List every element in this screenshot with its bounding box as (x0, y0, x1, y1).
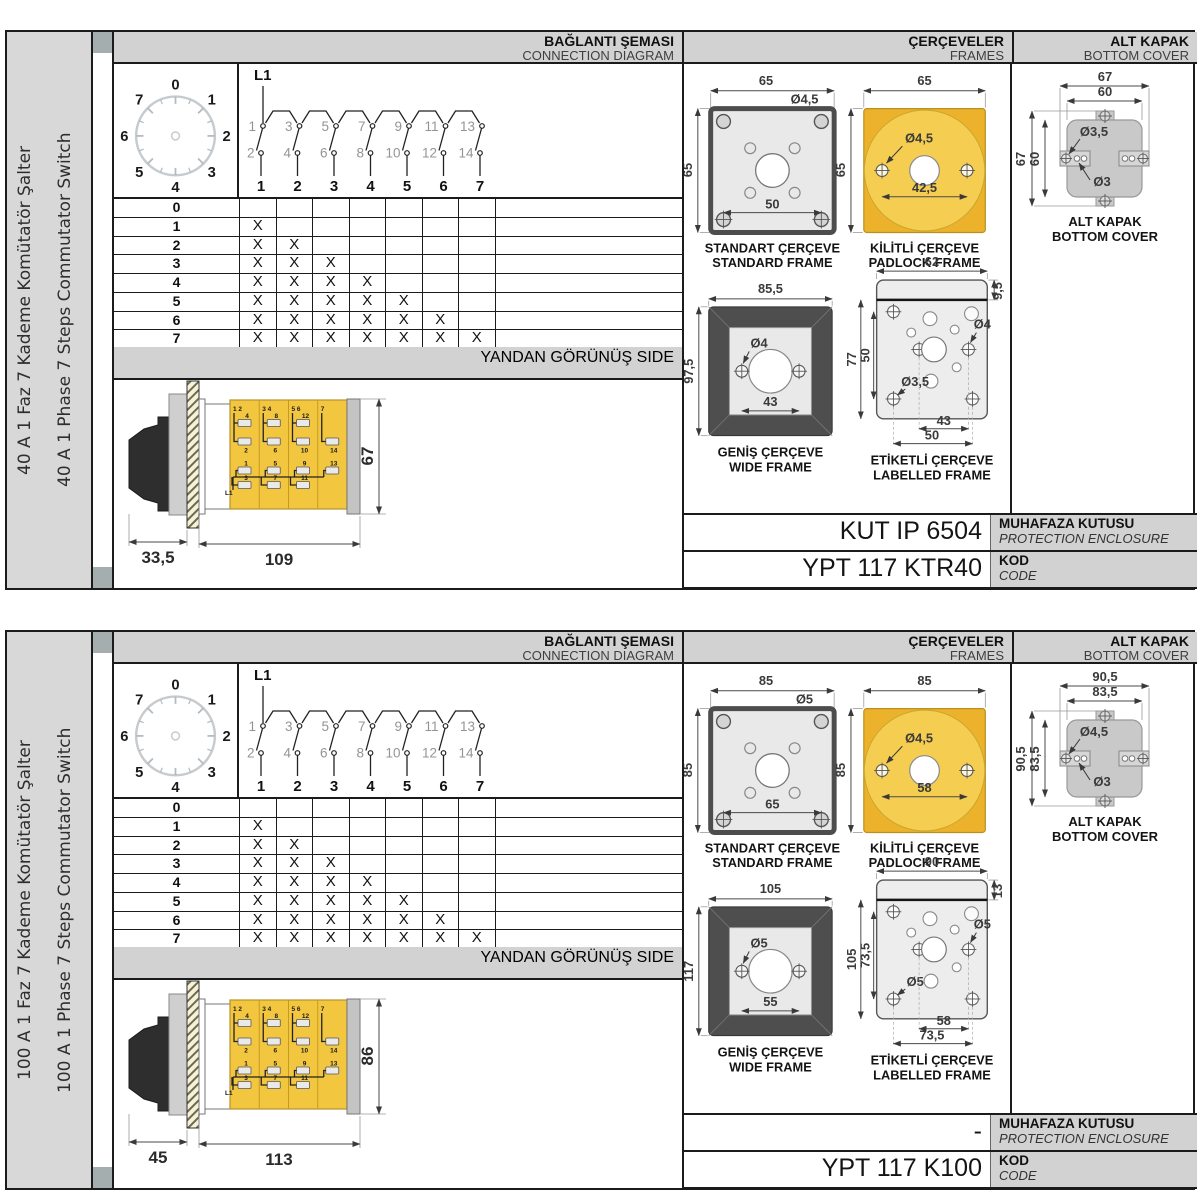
cover-width-inner: 60 (1098, 84, 1112, 99)
side-header-en: SIDE (637, 349, 674, 366)
dial-position: 5 (135, 165, 143, 181)
knob (129, 417, 169, 511)
contact-cell (386, 237, 423, 255)
connection-header-tr: BAĞLANTI ŞEMASI (114, 34, 674, 49)
contact-cell (350, 237, 387, 255)
bottom-terminal: 6 (320, 746, 328, 761)
bottom-terminal: 14 (458, 146, 474, 161)
contact-cell: X (350, 912, 387, 930)
terminal-pair-label: 7 (321, 1006, 325, 1013)
filler-cell (496, 874, 683, 892)
product-name-english: 40 A 1 Phase 7 Steps Commutator Switch (55, 32, 81, 588)
contact-cell: X (240, 255, 277, 273)
output-number: 5 (403, 178, 411, 195)
output-number: 1 (257, 778, 265, 795)
terminal-pair-label: 5 6 (292, 1006, 301, 1013)
step-row: 1X (114, 818, 682, 837)
step-number: 4 (114, 274, 240, 292)
contact-cell (459, 818, 496, 836)
code-label: KOD CODE (990, 1152, 1197, 1187)
padlock-frame-width: 85 (917, 673, 931, 688)
contact-cell: X (240, 312, 277, 330)
contact-cell: X (277, 855, 314, 873)
labelled-frame-caption-en: LABELLED FRAME (873, 467, 991, 482)
product-name-turkish: 40 A 1 Faz 7 Kademe Komütatör Şalter (15, 32, 41, 588)
frames-drawings: 85 Ø5 85 (682, 664, 1012, 1113)
step-number: 1 (114, 218, 240, 236)
step-number: 2 (114, 837, 240, 855)
contact-cell: X (313, 293, 350, 311)
bottom-terminal: 6 (320, 146, 328, 161)
wide-frame-width: 105 (760, 881, 781, 896)
code-label: KOD CODE (990, 552, 1197, 587)
contact-cell (277, 218, 314, 236)
dial-position: 7 (135, 93, 143, 109)
contact-cell: X (313, 274, 350, 292)
filler-cell (496, 237, 683, 255)
cover-hole-tab: Ø4,5 (1080, 724, 1108, 739)
step-number: 2 (114, 237, 240, 255)
top-terminal: 7 (358, 719, 366, 734)
standard-frame-height: 85 (684, 763, 695, 777)
contact-cell: X (313, 330, 350, 347)
filler-cell (496, 312, 683, 330)
contact-cell (423, 818, 460, 836)
contact-cell: X (277, 237, 314, 255)
contact-cell: X (277, 893, 314, 911)
contact-cell (423, 237, 460, 255)
product-section: 40 A 1 Faz 7 Kademe Komütatör Şalter 40 … (5, 30, 1195, 590)
dial-position: 7 (135, 693, 143, 709)
line-label: L1 (254, 667, 272, 684)
filler-cell (496, 818, 683, 836)
contact-cell: X (386, 912, 423, 930)
frames-header: ÇERÇEVELER FRAMES (682, 632, 1012, 664)
contact-cell: X (277, 274, 314, 292)
contact-cell: X (350, 893, 387, 911)
cover-hole-tab: Ø3,5 (1080, 124, 1108, 139)
labelled-frame-hole-bottom: Ø3,5 (901, 374, 929, 389)
output-number: 1 (257, 178, 265, 195)
bottom-cover-header: ALT KAPAK BOTTOM COVER (1012, 32, 1197, 64)
filler-cell (496, 930, 683, 947)
labelled-frame-width: 62 (925, 254, 939, 269)
knob (129, 1017, 169, 1111)
cover-header-tr: ALT KAPAK (1014, 634, 1189, 649)
spine-square-top (93, 32, 112, 53)
contact-cell (277, 199, 314, 217)
contact-cell (386, 855, 423, 873)
bottom-cover-drawing: 90,5 83,5 90,5 83,5 (1012, 664, 1197, 1113)
enclosure-label-tr: MUHAFAZA KUTUSU (999, 516, 1197, 532)
wide-frame-caption-en: WIDE FRAME (729, 1059, 812, 1074)
mounting-plate (187, 381, 199, 528)
standard-frame-drawing: 65 Ø4,5 65 (684, 73, 840, 270)
step-number: 7 (114, 330, 240, 347)
wide-frame-caption-tr: GENİŞ ÇERÇEVE (718, 444, 824, 459)
enclosure-label-en: PROTECTION ENCLOSURE (999, 532, 1197, 546)
contact-cell: X (386, 930, 423, 947)
terminal-number: 6 (273, 1048, 277, 1055)
terminal-number: 4 (245, 413, 249, 420)
terminal-number: 2 (244, 1048, 248, 1055)
output-number: 7 (476, 178, 484, 195)
bottom-terminal: 14 (458, 746, 474, 761)
code-value: YPT 117 KTR40 (684, 552, 990, 587)
contact-cell (423, 855, 460, 873)
terminal-pair-label: 7 (321, 406, 325, 413)
contact-cell: X (423, 312, 460, 330)
contact-cell: X (240, 293, 277, 311)
enclosure-row: KUT IP 6504 MUHAFAZA KUTUSU PROTECTION E… (682, 513, 1197, 550)
contact-cell: X (277, 293, 314, 311)
contact-cell: X (240, 893, 277, 911)
bottom-terminal: 8 (356, 146, 364, 161)
position-dial: 01234567 (114, 64, 239, 197)
standard-frame-hole: Ø4,5 (791, 92, 819, 107)
top-terminal: 11 (424, 719, 438, 734)
enclosure-label-en: PROTECTION ENCLOSURE (999, 1132, 1197, 1146)
knob-depth-dim: 45 (149, 1148, 168, 1167)
contact-cell (350, 837, 387, 855)
body-height-dim: 86 (358, 1047, 377, 1066)
bottom-terminal: 10 (385, 146, 400, 161)
enclosure-label: MUHAFAZA KUTUSU PROTECTION ENCLOSURE (990, 1115, 1197, 1150)
enclosure-value: - (684, 1115, 990, 1150)
labelled-frame-drawing: 90 13 105 73,5 (844, 854, 1005, 1082)
step-row: 0 (114, 199, 682, 218)
contact-cell (350, 218, 387, 236)
labelled-frame-spacing-outer: 50 (925, 428, 939, 443)
contact-cell: X (240, 855, 277, 873)
padlock-frame-hole: Ø4,5 (905, 130, 933, 145)
top-terminal: 9 (394, 719, 402, 734)
step-number: 7 (114, 930, 240, 947)
top-terminal: 11 (424, 119, 438, 134)
contact-cell (386, 274, 423, 292)
contact-cell: X (423, 912, 460, 930)
terminal-pair-label: 1 2 (233, 406, 242, 413)
filler-cell (496, 274, 683, 292)
terminal-number: 1 (244, 461, 248, 468)
bottom-terminal: 12 (422, 146, 437, 161)
padlock-frame-width: 65 (917, 73, 931, 88)
contact-cell (386, 255, 423, 273)
contact-cell (313, 199, 350, 217)
contact-cell (350, 818, 387, 836)
standard-frame-caption-tr: STANDART ÇERÇEVE (705, 840, 841, 855)
top-terminal: 13 (460, 719, 475, 734)
cover-caption-tr: ALT KAPAK (1068, 814, 1142, 829)
terminal-number: 9 (303, 461, 307, 468)
labelled-frame-hole-bottom: Ø5 (907, 974, 924, 989)
dial-position: 6 (120, 729, 128, 745)
labelled-frame-hole-right: Ø4 (974, 317, 992, 332)
wide-frame-height: 97,5 (684, 359, 696, 384)
filler-cell (496, 218, 683, 236)
cover-height-inner: 83,5 (1027, 746, 1042, 771)
step-contact-table: 01X2XX3XXX4XXXX5XXXXX6XXXXXX7XXXXXXX (114, 797, 682, 949)
padlock-frame-hole: Ø4,5 (905, 730, 933, 745)
dial-position: 4 (171, 780, 180, 796)
contact-cell (423, 218, 460, 236)
contact-cell (423, 837, 460, 855)
contact-cell: X (350, 274, 387, 292)
contact-cell: X (313, 855, 350, 873)
terminal-number: 6 (273, 448, 277, 455)
product-name-english: 100 A 1 Phase 7 Steps Commutator Switch (55, 632, 81, 1188)
contact-cell: X (313, 930, 350, 947)
code-label-tr: KOD (999, 553, 1197, 569)
contact-cell: X (350, 330, 387, 347)
contact-cell (459, 255, 496, 273)
connection-header-en: CONNECTION DIAGRAM (114, 649, 674, 663)
step-row: 2XX (114, 237, 682, 256)
terminal-pair-label: 3 4 (262, 406, 271, 413)
step-row: 6XXXXXX (114, 312, 682, 331)
cover-width-inner: 83,5 (1092, 684, 1117, 699)
bottom-terminal: 2 (247, 746, 255, 761)
padlock-frame-caption-tr: KİLİTLİ ÇERÇEVE (870, 240, 980, 255)
dial-position: 4 (171, 180, 180, 196)
terminal-number: 13 (330, 1061, 338, 1068)
code-label-en: CODE (999, 569, 1197, 583)
switch-schematic: L112134256378491051112613147 (240, 64, 682, 197)
cover-width-outer: 67 (1098, 69, 1112, 84)
bottom-terminal: 2 (247, 146, 255, 161)
contact-cell: X (240, 912, 277, 930)
contact-cell (459, 855, 496, 873)
contact-cell: X (240, 274, 277, 292)
contact-cell: X (313, 255, 350, 273)
standard-frame-drawing: 85 Ø5 85 (684, 673, 840, 870)
dial-position: 2 (223, 129, 231, 145)
contact-cell: X (386, 312, 423, 330)
knob-depth-dim: 33,5 (141, 548, 174, 567)
padlock-frame-height: 85 (833, 763, 848, 777)
filler-cell (496, 330, 683, 347)
cover-header-en: BOTTOM COVER (1014, 49, 1189, 63)
contact-cell (459, 218, 496, 236)
contact-cell (459, 237, 496, 255)
code-label-tr: KOD (999, 1153, 1197, 1169)
step-number: 6 (114, 912, 240, 930)
contact-cell (386, 799, 423, 817)
contact-cell (313, 237, 350, 255)
terminal-number: 4 (245, 1013, 249, 1020)
code-label-en: CODE (999, 1169, 1197, 1183)
filler-cell (496, 893, 683, 911)
contact-cell (313, 218, 350, 236)
step-number: 1 (114, 818, 240, 836)
labelled-frame-height: 105 (844, 949, 859, 971)
output-number: 3 (330, 778, 338, 795)
terminal-number: 12 (302, 413, 310, 420)
switch-schematic: L112134256378491051112613147 (240, 664, 682, 797)
side-line-label: L1 (225, 490, 233, 497)
labelled-frame-width: 90 (925, 854, 939, 869)
step-row: 3XXX (114, 855, 682, 874)
terminal-number: 11 (301, 475, 308, 482)
contact-cell: X (277, 930, 314, 947)
contact-cell (350, 799, 387, 817)
standard-frame-caption-en: STANDARD FRAME (712, 255, 833, 270)
contact-cell: X (277, 912, 314, 930)
output-number: 7 (476, 778, 484, 795)
filler-cell (496, 912, 683, 930)
contact-cell (313, 799, 350, 817)
contact-cell (459, 912, 496, 930)
contact-cell: X (313, 312, 350, 330)
contact-cell (423, 874, 460, 892)
contact-cell: X (350, 293, 387, 311)
contact-cell (350, 855, 387, 873)
dial-position: 0 (171, 78, 179, 94)
filler-cell (496, 293, 683, 311)
output-number: 6 (439, 778, 447, 795)
labelled-frame-spacing-outer: 73,5 (919, 1028, 944, 1043)
contact-cell (240, 199, 277, 217)
contact-cell: X (423, 330, 460, 347)
terminal-number: 10 (301, 1048, 309, 1055)
cover-height-outer: 90,5 (1013, 746, 1028, 771)
contact-cell: X (313, 912, 350, 930)
connection-diagram-header: BAĞLANTI ŞEMASI CONNECTION DIAGRAM (114, 32, 682, 64)
code-row: YPT 117 K100 KOD CODE (682, 1150, 1197, 1189)
contact-cell: X (277, 312, 314, 330)
terminal-number: 10 (301, 448, 309, 455)
side-header-tr: YANDAN GÖRÜNÜŞ (480, 349, 632, 366)
contact-cell (386, 818, 423, 836)
step-row: 4XXXX (114, 874, 682, 893)
terminal-number: 7 (273, 475, 277, 482)
dial-position: 2 (223, 729, 231, 745)
top-terminal: 5 (321, 119, 329, 134)
standard-frame-hole: Ø5 (796, 692, 813, 707)
contact-cell (313, 837, 350, 855)
labelled-frame-caption-tr: ETİKETLİ ÇERÇEVE (871, 1052, 994, 1067)
standard-frame-width: 85 (759, 673, 773, 688)
code-row: YPT 117 KTR40 KOD CODE (682, 550, 1197, 589)
contact-cell (459, 293, 496, 311)
contact-cell: X (240, 874, 277, 892)
product-side-label: 40 A 1 Faz 7 Kademe Komütatör Şalter 40 … (7, 32, 93, 588)
terminal-number: 5 (273, 461, 277, 468)
labelled-frame-inner-height: 73,5 (858, 943, 873, 968)
contact-cell (459, 799, 496, 817)
output-number: 2 (293, 178, 301, 195)
contact-cell (459, 874, 496, 892)
labelled-frame-height: 77 (844, 352, 859, 366)
output-number: 4 (366, 778, 375, 795)
product-section: 100 A 1 Faz 7 Kademe Komütatör Şalter 10… (5, 630, 1195, 1190)
terminal-number: 8 (274, 413, 278, 420)
output-number: 5 (403, 778, 411, 795)
padlock-frame-height: 65 (833, 163, 848, 177)
enclosure-label-tr: MUHAFAZA KUTUSU (999, 1116, 1197, 1132)
wide-frame-caption-en: WIDE FRAME (729, 459, 812, 474)
step-number: 0 (114, 799, 240, 817)
contact-cell (423, 199, 460, 217)
frames-drawings: 65 Ø4,5 65 (682, 64, 1012, 513)
terminal-number: 7 (273, 1075, 277, 1082)
labelled-frame-strip: 9,5 (990, 282, 1005, 300)
output-number: 4 (366, 178, 375, 195)
step-contact-table: 01X2XX3XXX4XXXX5XXXXX6XXXXXX7XXXXXXX (114, 197, 682, 349)
contact-cell (459, 199, 496, 217)
enclosure-label: MUHAFAZA KUTUSU PROTECTION ENCLOSURE (990, 515, 1197, 550)
top-terminal: 3 (285, 719, 293, 734)
step-number: 5 (114, 293, 240, 311)
labelled-frame-inner-height: 50 (858, 348, 873, 362)
cover-caption-en: BOTTOM COVER (1052, 829, 1159, 844)
spine-square-bottom (93, 1167, 112, 1188)
bottom-terminal: 12 (422, 746, 437, 761)
body-length-dim: 109 (265, 550, 293, 569)
contact-cell (423, 293, 460, 311)
step-number: 4 (114, 874, 240, 892)
terminal-number: 5 (273, 1061, 277, 1068)
contact-cell (277, 818, 314, 836)
contact-cell (459, 312, 496, 330)
contact-cell: X (240, 237, 277, 255)
cover-caption-en: BOTTOM COVER (1052, 229, 1159, 244)
spine-strip (93, 32, 114, 588)
terminal-number: 2 (244, 448, 248, 455)
side-header-en: SIDE (637, 949, 674, 966)
code-value: YPT 117 K100 (684, 1152, 990, 1187)
labelled-frame-spacing-inner: 43 (937, 413, 951, 428)
wide-frame-height: 117 (684, 961, 696, 982)
contact-cell (459, 274, 496, 292)
contact-cell (423, 274, 460, 292)
enclosure-value: KUT IP 6504 (684, 515, 990, 550)
bottom-terminal: 4 (283, 146, 291, 161)
terminal-pair-label: 5 6 (292, 406, 301, 413)
contact-cell: X (277, 874, 314, 892)
terminal-number: 12 (302, 1013, 310, 1020)
dial-position: 3 (208, 165, 216, 181)
side-view-drawing: 1 242133 486575 6121091171413L18611345 (114, 980, 682, 1192)
standard-frame-caption-tr: STANDART ÇERÇEVE (705, 240, 841, 255)
contact-cell: X (386, 293, 423, 311)
labelled-frame-drawing: 62 9,5 77 50 (844, 254, 1005, 482)
frames-header-en: FRAMES (684, 649, 1004, 663)
step-row: 2XX (114, 837, 682, 856)
contact-cell: X (277, 255, 314, 273)
contact-cell: X (313, 874, 350, 892)
contact-cell: X (240, 330, 277, 347)
spine-square-top (93, 632, 112, 653)
step-row: 3XXX (114, 255, 682, 274)
top-terminal: 5 (321, 719, 329, 734)
side-view-header: YANDAN GÖRÜNÜŞ SIDE (114, 347, 682, 380)
bottom-terminal: 4 (283, 746, 291, 761)
contact-cell: X (313, 893, 350, 911)
filler-cell (496, 855, 683, 873)
contact-cell (240, 799, 277, 817)
standard-frame-caption-en: STANDARD FRAME (712, 855, 833, 870)
cover-header-tr: ALT KAPAK (1014, 34, 1189, 49)
top-terminal: 1 (248, 119, 256, 134)
position-dial: 01234567 (114, 664, 239, 797)
connection-diagram-header: BAĞLANTI ŞEMASI CONNECTION DIAGRAM (114, 632, 682, 664)
terminal-number: 13 (330, 461, 338, 468)
output-number: 3 (330, 178, 338, 195)
contact-cell (386, 837, 423, 855)
labelled-frame-hole-right: Ø5 (974, 917, 991, 932)
padlock-frame-drawing: 85 85 Ø4,5 58 (833, 673, 985, 870)
